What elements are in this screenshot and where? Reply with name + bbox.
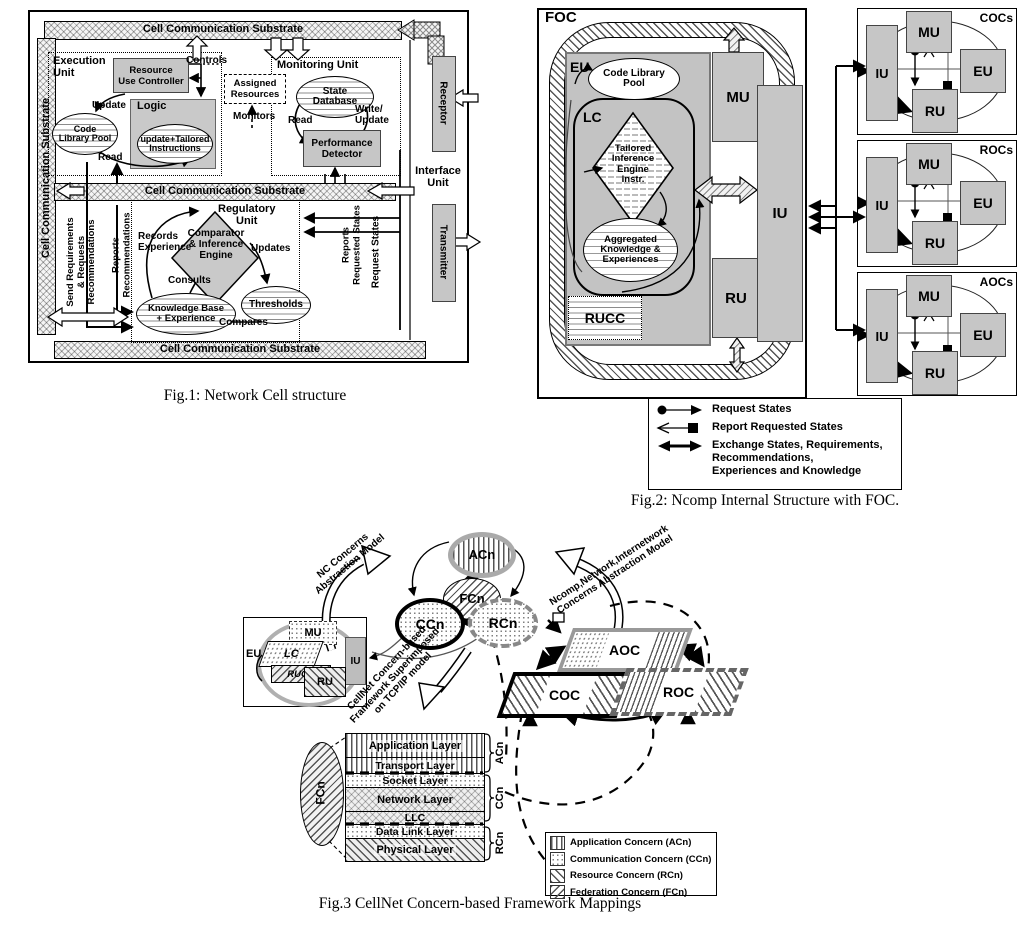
rocs-eu-block: EU [960,181,1006,225]
foc-code-library-pool-ellipse: Code Library Pool [588,58,680,100]
cell-ru-block: RU [304,667,346,697]
rocs-mu-block: MU [906,143,952,185]
monitoring-read-label: Read [288,116,312,127]
acn-legend-text: Application Concern (ACn) [570,837,691,848]
legend-acn-row: Application Concern (ACn) [550,836,712,850]
rocs-mu-label: MU [918,156,940,172]
coc-pattern-left [502,676,549,714]
fig1-substrate-band-top: Cell Communication Substrate [44,21,402,40]
aocs-eu-label: EU [973,327,992,343]
foc-label: FOC [545,10,577,26]
state-database-label: State Database [313,87,357,108]
instructions-ellipse: update+Tailored Instructions [137,124,213,164]
rcn-swatch-icon [550,869,565,883]
send-requirements-label: Send Requirements & Requests Recommendat… [66,217,98,306]
cocs-ru-block: RU [912,89,958,133]
aggregated-knowledge-label: Aggregated Knowledge & Experiences [600,235,660,265]
regulatory-unit-title: Regulatory Unit [218,204,275,228]
aocs-iu-label: IU [876,329,889,344]
eu-label: EU [570,60,589,75]
fig3-legend: Application Concern (ACn) Communication … [545,832,717,896]
foc-iu-label: IU [773,205,788,222]
reports-requested-states-label: Reports Requested States [341,205,362,285]
layer-physical: Physical Layer [346,839,484,862]
assigned-resources-box: Assigned Resources [224,74,286,104]
lc-label: LC [583,110,602,125]
layer-llc-label: LLC [405,812,425,824]
report-requested-symbol-icon [655,421,705,435]
aocs-mu-label: MU [918,288,940,304]
rcn-ellipse: RCn [468,598,538,648]
rocs-iu-block: IU [866,157,898,253]
stack-fcn-label: FCn [314,781,327,804]
ncomp-network-label: Ncomp,Network,Internetwork Concerns Abst… [529,511,696,630]
aocs-ru-label: RU [925,365,945,381]
rocs-title: ROCs [980,143,1013,157]
layer-transport: Transport Layer [346,758,484,774]
aocs-mu-block: MU [906,275,952,317]
logic-label: Logic [137,101,166,113]
knowledge-base-label: Knowledge Base + Experience [148,304,224,324]
substrate-left-label: Cell Communication Substrate [40,98,52,258]
rucc-label: RUCC [585,310,625,326]
layer-physical-label: Physical Layer [374,844,455,856]
request-states-text: Request States [712,403,791,416]
layer-application: Application Layer [346,734,484,758]
monitoring-unit-title: Monitoring Unit [277,60,358,72]
performance-detector-block: Performance Detector [303,130,381,167]
request-states-symbol-icon [655,403,705,417]
layer-network-label: Network Layer [377,794,453,806]
aoc-pattern-left [562,632,609,668]
request-states-label: Request States [370,216,381,288]
cell-mu-label: MU [304,627,321,639]
layer-socket-label: Socket Layer [382,775,447,787]
performance-detector-label: Performance Detector [311,138,372,160]
legend-row-request: Request States [655,403,895,417]
substrate-bottom-label: Cell Communication Substrate [55,342,425,357]
fig3-caption: Fig.3 CellNet Concern-based Framework Ma… [280,895,680,913]
rocs-iu-label: IU [876,198,889,213]
rocs-box: IU MU EU RU ROCs [857,140,1017,267]
cocs-eu-label: EU [973,63,992,79]
foc-ru-block: RU [712,258,760,338]
brace-ccn-label: CCn [494,787,506,810]
acn-label: ACn [469,548,496,562]
nc-concerns-label: NC Concerns Abstraction Model [283,504,412,617]
ncomp-cell-box: MU IU EU LC RUCC RU [243,617,367,707]
rocs-ru-label: RU [925,235,945,251]
rcn-legend-text: Resource Concern (RCn) [570,870,683,881]
substrate-top-label: Cell Communication Substrate [45,22,401,37]
layer-datalink-label: Data Link Layer [376,826,454,838]
thresholds-label: Thresholds [249,300,303,311]
read-label: Read [98,153,122,164]
foc-code-library-pool-label: Code Library Pool [603,69,665,90]
aoc-pattern-right [645,632,687,668]
acn-swatch-icon [550,836,565,850]
legend-row-report: Report Requested States [655,421,895,435]
execution-unit-title: Execution Unit [53,56,106,80]
code-library-pool-ellipse: Code Library Pool [52,113,118,155]
write-update-label: Write/ Update [355,105,389,127]
cocs-ru-label: RU [925,103,945,119]
brace-rcn-label: RCn [494,832,506,855]
transmitter-label: Transmitter [438,225,449,279]
layer-socket: Socket Layer [346,774,484,788]
cell-ru-label: RU [317,676,333,688]
resource-use-controller-block: Resource Use Controller [113,58,189,93]
brace-acn-label: ACn [494,742,506,765]
roc-parallelogram: ROC [609,668,748,716]
coc-label: COC [549,687,580,703]
foc-ru-label: RU [725,290,747,307]
aoc-label: AOC [609,642,640,658]
fig2-caption: Fig.2: Ncomp Internal Structure with FOC… [590,492,940,510]
exchange-text: Exchange States, Requirements, Recommend… [712,439,883,479]
comparator-engine-label: Comparator & Inference Engine [177,229,255,261]
cocs-title: COCs [980,11,1013,25]
exchange-symbol-icon [655,439,705,453]
compares-label: Compares [219,318,268,329]
fig2-legend: Request States Report Requested States E… [648,398,902,490]
legend-rcn-row: Resource Concern (RCn) [550,869,712,883]
update-label: Update [92,101,126,112]
assigned-resources-label: Assigned Resources [231,78,280,100]
fig1-caption: Fig.1: Network Cell structure [110,387,400,405]
rocs-ru-block: RU [912,221,958,265]
reports-recommendations-label: Reports Recommendations [111,213,132,298]
aocs-eu-block: EU [960,313,1006,357]
rocs-eu-label: EU [973,195,992,211]
substrate-mid-label: Cell Communication Substrate [55,184,395,199]
layer-transport-label: Transport Layer [373,760,456,772]
resource-use-controller-label: Resource Use Controller [118,65,183,87]
stack-braces [485,734,494,860]
ccn-swatch-icon [550,852,565,866]
roc-pattern-right [695,672,744,712]
code-library-pool-label: Code Library Pool [59,125,112,144]
aocs-title: AOCs [980,275,1013,289]
rcn-label: RCn [489,616,518,631]
roc-pattern-left [615,672,668,712]
rucc-box: RUCC [568,296,642,340]
cell-eu-label: EU [246,649,261,661]
legend-ccn-row: Communication Concern (CCn) [550,852,712,866]
fig1-substrate-band-mid: Cell Communication Substrate [54,183,396,201]
receptor-label: Receptor [438,81,449,124]
tailored-engine-label: Tailored Inference Engine Instr. [598,144,668,185]
cell-lc-block: LC [258,641,323,667]
cocs-iu-block: IU [866,25,898,121]
cocs-mu-block: MU [906,11,952,53]
foc-mu-label: MU [726,89,749,106]
aoc-parallelogram: AOC [557,628,693,672]
cocs-iu-label: IU [876,66,889,81]
cocs-mu-label: MU [918,24,940,40]
foc-iu-block: IU [757,85,803,342]
report-requested-text: Report Requested States [712,421,843,434]
cocs-box: IU MU EU RU COCs [857,8,1017,135]
roc-label: ROC [663,684,694,700]
cell-iu-label: IU [351,656,361,667]
aggregated-knowledge-ellipse: Aggregated Knowledge & Experiences [583,218,678,282]
updates-label: Updates [251,244,290,255]
legend-row-exchange: Exchange States, Requirements, Recommend… [655,439,895,479]
acn-ellipse: ACn [448,532,516,578]
instructions-label: update+Tailored Instructions [140,135,209,154]
aocs-iu-block: IU [866,289,898,383]
cocs-eu-block: EU [960,49,1006,93]
aocs-ru-block: RU [912,351,958,395]
consults-label: Consults [168,276,211,287]
fig1-substrate-band-bottom: Cell Communication Substrate [54,341,426,359]
interface-unit-label: Interface Unit [412,166,464,190]
tcpip-stack: Application Layer Transport Layer Socket… [345,733,485,862]
monitors-label: Monitors [233,112,275,123]
layer-llc: LLC [346,812,484,825]
controls-label: Controls [186,56,227,67]
cell-lc-label: LC [284,648,299,660]
cell-iu-block: IU [345,637,366,685]
layer-datalink: Data Link Layer [346,825,484,839]
ccn-legend-text: Communication Concern (CCn) [570,854,711,865]
aocs-box: IU MU EU RU AOCs [857,272,1017,396]
layer-network: Network Layer [346,788,484,812]
paper-figures-page: Cell Communication Substrate Cell Commun… [0,0,1023,934]
layer-application-label: Application Layer [367,740,463,752]
